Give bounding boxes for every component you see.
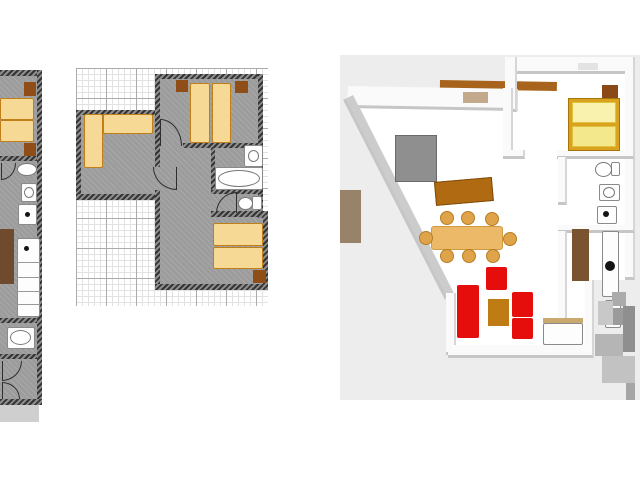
wall-kitchen-left <box>558 231 567 330</box>
wall-top-right <box>505 57 635 74</box>
sink-bowl <box>248 150 259 162</box>
tall-cabinet <box>0 229 14 284</box>
gold-bed-mattress <box>572 126 616 147</box>
toilet-tank <box>252 196 262 210</box>
terrace-strip <box>0 405 39 422</box>
red-armchair <box>512 292 533 317</box>
wall-bedroom-bottom <box>557 150 635 159</box>
bed-mattress <box>0 120 34 142</box>
terrace-bench <box>340 190 361 243</box>
wall-bedroom-top <box>155 74 263 79</box>
toilet-bowl <box>17 163 37 176</box>
counter-line <box>17 291 40 292</box>
stair-step <box>598 301 613 325</box>
corner-sofa-vertical <box>84 114 103 168</box>
counter-line <box>17 277 40 278</box>
dining-chair <box>503 232 517 246</box>
toilet-tank <box>611 162 620 176</box>
bed-mattress <box>0 98 34 120</box>
dining-table <box>431 226 503 250</box>
tall-cabinet <box>572 229 589 281</box>
wall-stairs-divider <box>585 280 594 358</box>
toilet-bowl <box>10 330 31 345</box>
wall-right <box>37 70 42 404</box>
wall-top <box>0 70 42 76</box>
dining-chair <box>462 249 476 263</box>
wall-living-bottom <box>76 194 160 200</box>
wall-center-vertical <box>155 190 160 290</box>
plan-2d-main <box>76 68 268 306</box>
red-sofa <box>457 285 479 338</box>
dining-chair <box>485 212 499 226</box>
toilet-bowl <box>238 197 253 210</box>
wall-divider <box>0 354 37 359</box>
wall-bedroom-left <box>503 88 513 158</box>
wall-divider <box>0 156 37 161</box>
sink-bowl <box>603 187 615 198</box>
wall-bath-kitchen-divider <box>558 225 635 233</box>
wall-bottom <box>448 345 594 358</box>
bed-mattress <box>213 247 263 269</box>
bathtub-basin <box>218 170 260 187</box>
counter-line <box>17 304 40 305</box>
wardrobe <box>395 135 437 182</box>
dining-chair <box>486 249 500 263</box>
sink-bowl <box>24 187 34 198</box>
wall-bathroom-left <box>558 157 567 205</box>
bed-mattress <box>213 223 263 246</box>
wall-left <box>76 110 81 200</box>
coffee-table <box>488 299 509 326</box>
wall-bedroom-bottom <box>503 150 525 159</box>
dining-chair <box>419 231 433 245</box>
nightstand <box>253 270 266 283</box>
plan-3d-render <box>340 55 640 400</box>
nightstand <box>24 143 36 156</box>
wall-cabinet <box>463 92 488 103</box>
floor-plan-image <box>0 0 640 480</box>
sideboard <box>434 177 494 206</box>
wall-divider <box>0 318 37 323</box>
dining-chair <box>440 211 454 225</box>
stair-step <box>602 356 635 383</box>
stair-step <box>595 334 623 356</box>
dining-chair <box>440 249 454 263</box>
stair-step <box>612 292 626 306</box>
wall-top-left <box>348 86 518 111</box>
stove-burner <box>605 261 615 271</box>
stair-step <box>623 306 635 352</box>
skylight <box>578 63 598 70</box>
nightstand <box>24 82 36 96</box>
corner-sofa-horizontal <box>103 114 153 134</box>
red-armchair <box>486 267 507 290</box>
tv-cabinet <box>543 323 583 345</box>
wall-right <box>625 57 635 280</box>
stair-step <box>626 383 635 400</box>
washer-dot <box>25 212 30 217</box>
stove-dot <box>24 246 29 251</box>
nightstand <box>176 80 188 92</box>
counter-line <box>17 262 40 263</box>
bed-mattress <box>190 83 210 143</box>
gold-bed-mattress <box>572 102 616 123</box>
wall-bath-toilet-divider <box>211 190 263 194</box>
dining-chair <box>461 211 475 225</box>
nightstand <box>602 85 618 98</box>
plan-2d-partial <box>0 62 46 427</box>
wall-bottom <box>155 284 268 290</box>
bed-mattress <box>212 83 231 143</box>
washer-dot <box>603 211 609 217</box>
red-armchair <box>512 318 533 339</box>
nightstand <box>235 81 248 93</box>
toilet-bowl <box>595 162 612 177</box>
